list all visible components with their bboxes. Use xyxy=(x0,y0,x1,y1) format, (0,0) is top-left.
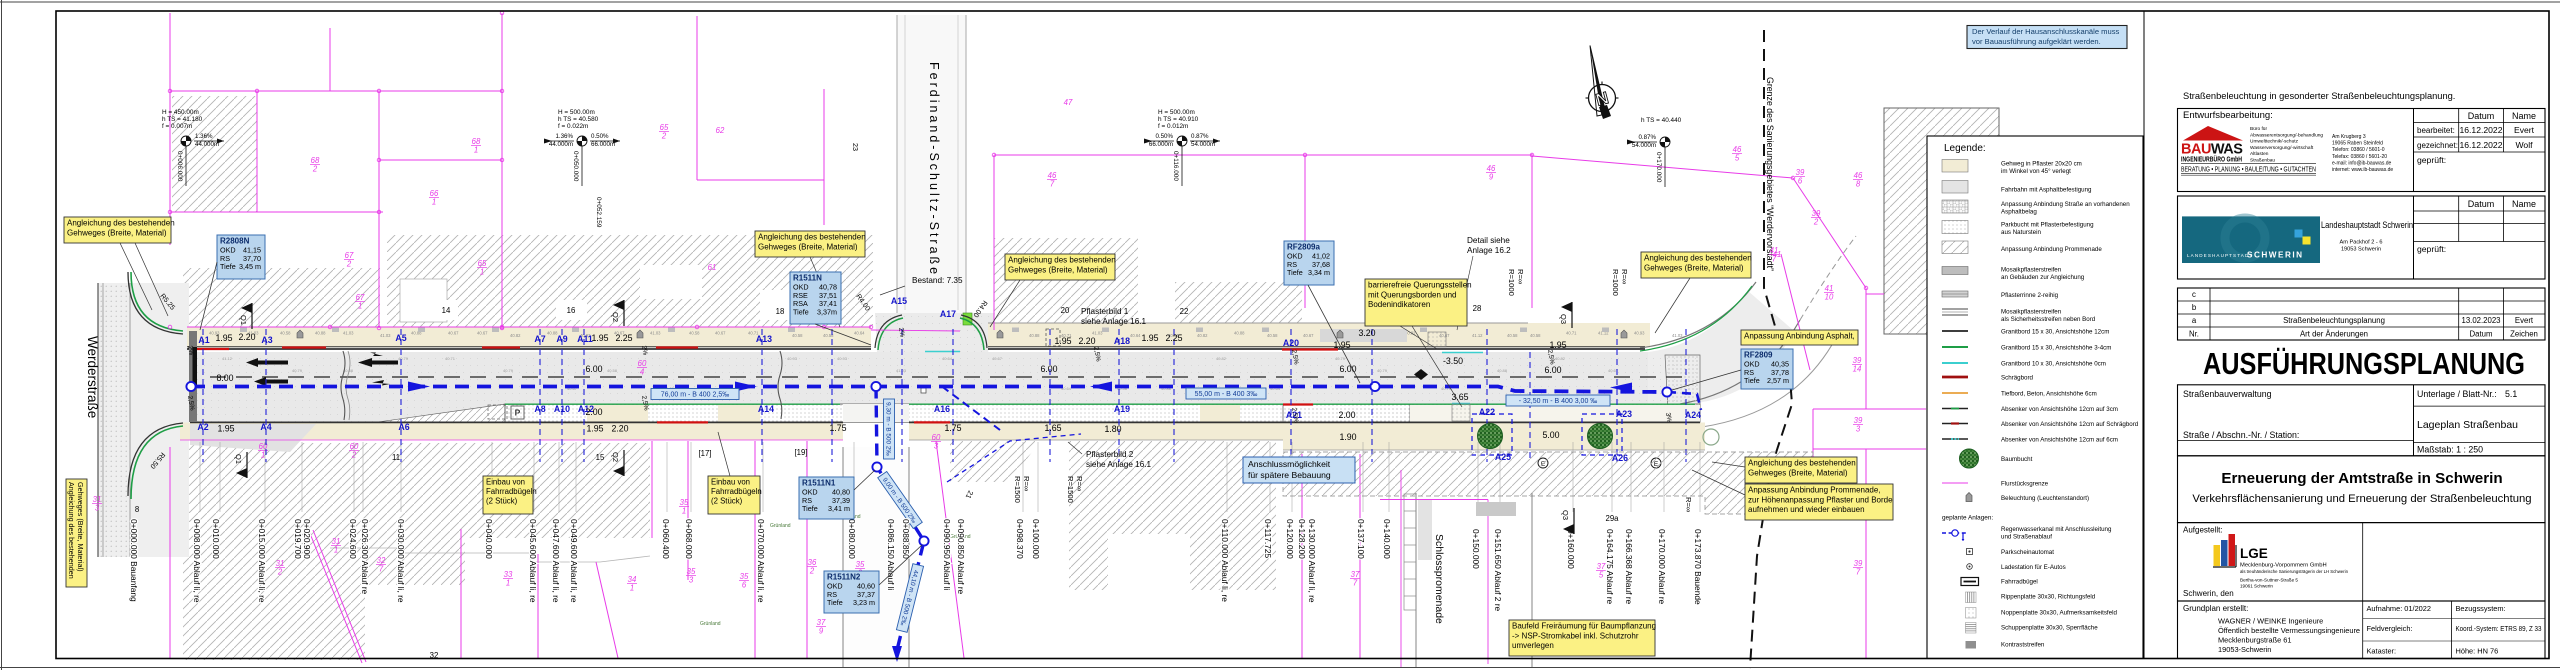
svg-text:6.00: 6.00 xyxy=(1544,365,1561,375)
svg-text:0+090.950 Ablauf li: 0+090.950 Ablauf li xyxy=(942,519,952,591)
svg-text:Öffentlich bestellte Vermessun: Öffentlich bestellte Vermessungsingenieu… xyxy=(2218,626,2360,635)
svg-text:Q2: Q2 xyxy=(611,312,620,322)
svg-text:41.03: 41.03 xyxy=(650,331,661,336)
svg-text:3,45 m: 3,45 m xyxy=(239,262,261,271)
svg-text:19053-Schwerin: 19053-Schwerin xyxy=(2218,645,2271,654)
svg-text:aufnehmen und wieder einbauen: aufnehmen und wieder einbauen xyxy=(1748,505,1865,514)
svg-text:2.20: 2.20 xyxy=(238,332,255,342)
svg-text:Pflasterbild 1: Pflasterbild 1 xyxy=(1081,307,1129,316)
svg-text:0+151.650 Ablauf 2 re: 0+151.650 Ablauf 2 re xyxy=(1493,529,1503,612)
svg-text:Angleichung des bestehenden: Angleichung des bestehenden xyxy=(758,233,866,242)
svg-text:1.36%: 1.36% xyxy=(195,133,213,140)
svg-text:16: 16 xyxy=(567,306,576,315)
svg-text:66.000m: 66.000m xyxy=(591,141,615,148)
svg-text:A10: A10 xyxy=(554,404,570,414)
svg-text:0+026.300 Ablauf re: 0+026.300 Ablauf re xyxy=(360,519,370,595)
svg-text:A6: A6 xyxy=(398,422,409,432)
svg-text:Tiefe: Tiefe xyxy=(827,598,843,607)
svg-text:7: 7 xyxy=(379,565,384,574)
svg-text:Fahrradbügeln: Fahrradbügeln xyxy=(486,487,537,496)
svg-text:1: 1 xyxy=(630,584,634,593)
svg-text:Mosaikpflasterstreifen: Mosaikpflasterstreifen xyxy=(2001,267,2062,274)
svg-text:Name: Name xyxy=(2512,199,2536,209)
svg-text:A5: A5 xyxy=(395,333,406,343)
svg-text:im Winkel von 45° verlegt: im Winkel von 45° verlegt xyxy=(2001,168,2071,175)
svg-text:Noppenplatte 30x30, Aufmerksam: Noppenplatte 30x30, Aufmerksamkeitsfeld xyxy=(2001,610,2117,617)
svg-text:0+040.000: 0+040.000 xyxy=(484,519,494,559)
svg-text:A24: A24 xyxy=(1685,410,1701,420)
svg-text:Pflasterbild 2: Pflasterbild 2 xyxy=(1086,450,1134,459)
svg-text:0+045.600 Ablauf li, re: 0+045.600 Ablauf li, re xyxy=(528,519,538,603)
svg-text:Büro für: Büro für xyxy=(2250,126,2267,132)
svg-text:AUSFÜHRUNGSPLANUNG: AUSFÜHRUNGSPLANUNG xyxy=(2203,346,2525,381)
svg-text:Koord.-System: ETRS 89, Z 33: Koord.-System: ETRS 89, Z 33 xyxy=(2456,626,2542,633)
svg-text:1: 1 xyxy=(480,268,484,277)
svg-text:Einbau von: Einbau von xyxy=(711,478,750,487)
svg-text:Absenker von Ansichtshöhe 12cm: Absenker von Ansichtshöhe 12cm auf 3cm xyxy=(2001,406,2118,413)
svg-text:Mosaikpflasterstreifen: Mosaikpflasterstreifen xyxy=(2001,309,2062,316)
svg-text:40.79: 40.79 xyxy=(1377,368,1388,373)
svg-text:15: 15 xyxy=(596,453,605,462)
svg-text:40.79: 40.79 xyxy=(292,368,303,373)
svg-text:3,23 m: 3,23 m xyxy=(853,598,875,607)
svg-text:[19]: [19] xyxy=(794,448,807,457)
svg-text:Pflasterrinne 2-reihig: Pflasterrinne 2-reihig xyxy=(2001,292,2059,299)
svg-text:2: 2 xyxy=(312,165,318,174)
svg-text:A17: A17 xyxy=(940,309,956,319)
svg-text:(2 Stück): (2 Stück) xyxy=(711,496,743,505)
svg-text:A23: A23 xyxy=(1616,409,1632,419)
svg-text:0+098.370: 0+098.370 xyxy=(1015,519,1025,559)
svg-text:[17]: [17] xyxy=(698,449,711,458)
svg-text:40.82: 40.82 xyxy=(1216,356,1227,361)
svg-text:0+128.200: 0+128.200 xyxy=(1297,519,1307,559)
svg-text:0+130.000 Ablauf li, re: 0+130.000 Ablauf li, re xyxy=(1307,519,1317,603)
svg-text:siehe Anlage 16.1: siehe Anlage 16.1 xyxy=(1081,317,1147,326)
svg-text:R1511N1: R1511N1 xyxy=(802,479,836,488)
svg-text:A16: A16 xyxy=(934,404,950,414)
svg-text:geplante Anlagen:: geplante Anlagen: xyxy=(1942,515,1993,522)
svg-text:Einbau von: Einbau von xyxy=(486,478,525,487)
svg-text:41: 41 xyxy=(1773,250,1782,259)
svg-text:1.95: 1.95 xyxy=(1054,336,1071,346)
svg-text:40.79: 40.79 xyxy=(503,368,514,373)
svg-text:Gehweges (Breite, Material): Gehweges (Breite, Material) xyxy=(76,482,85,571)
svg-text:0.50%: 0.50% xyxy=(1155,133,1173,140)
svg-text:40.82: 40.82 xyxy=(1555,356,1566,361)
svg-text:0+068.000: 0+068.000 xyxy=(684,519,694,559)
svg-text:Lageplan Straßenbau: Lageplan Straßenbau xyxy=(2417,419,2518,431)
svg-text:Q2: Q2 xyxy=(611,452,620,462)
svg-text:Tiefe: Tiefe xyxy=(793,307,809,316)
svg-text:-> NSP-Stromkabel inkl. Schutz: -> NSP-Stromkabel inkl. Schutzrohr xyxy=(1512,631,1639,640)
svg-text:umverlegen: umverlegen xyxy=(1512,641,1554,650)
svg-text:3,34 m: 3,34 m xyxy=(1308,268,1330,277)
svg-text:40.88: 40.88 xyxy=(1234,331,1245,336)
svg-text:R1511N: R1511N xyxy=(793,274,822,283)
svg-text:0+070.000 Ablauf li, re: 0+070.000 Ablauf li, re xyxy=(756,519,766,603)
svg-text:Fahrradbügel: Fahrradbügel xyxy=(2001,579,2038,586)
svg-text:Asphaltbelag: Asphaltbelag xyxy=(2001,208,2037,215)
svg-text:16.12.2022: 16.12.2022 xyxy=(2459,125,2502,135)
svg-text:20: 20 xyxy=(1061,306,1070,315)
svg-text:0+030.000 Ablauf li, re: 0+030.000 Ablauf li, re xyxy=(396,519,406,603)
svg-text:1.90: 1.90 xyxy=(1339,432,1356,442)
svg-text:gezeichnet:: gezeichnet: xyxy=(2417,141,2458,150)
svg-text:Granitbord 15 x 30, Ansichtshö: Granitbord 15 x 30, Ansichtshöhe 3-4cm xyxy=(2001,345,2111,352)
svg-text:Grünland: Grünland xyxy=(770,523,791,529)
svg-text:Evert: Evert xyxy=(2514,125,2535,135)
svg-text:für spätere Bebauung: für spätere Bebauung xyxy=(1248,470,1331,480)
svg-text:LGE: LGE xyxy=(2240,546,2268,561)
svg-text:Werderstraße: Werderstraße xyxy=(85,336,100,418)
svg-text:0+020.900: 0+020.900 xyxy=(302,519,312,559)
svg-text:Tiefe: Tiefe xyxy=(1744,376,1760,385)
svg-text:23: 23 xyxy=(851,143,860,151)
svg-text:40.67: 40.67 xyxy=(448,331,459,336)
svg-text:Granitbord 15 x 30, Ansichtshö: Granitbord 15 x 30, Ansichtshöhe 12cm xyxy=(2001,329,2109,336)
svg-text:41.12: 41.12 xyxy=(1472,333,1483,338)
svg-text:40.67: 40.67 xyxy=(715,331,726,336)
svg-text:0+080.000: 0+080.000 xyxy=(847,519,857,559)
svg-text:A26: A26 xyxy=(1612,453,1628,463)
svg-text:an Gebäuden zur Angleichung: an Gebäuden zur Angleichung xyxy=(2001,274,2085,281)
svg-text:Beleuchtung (Leuchtenstandort): Beleuchtung (Leuchtenstandort) xyxy=(2001,495,2089,502)
svg-text:40.64: 40.64 xyxy=(1130,333,1141,338)
svg-text:Schrägbord: Schrägbord xyxy=(2001,375,2034,382)
svg-text:40.71: 40.71 xyxy=(1566,331,1577,336)
svg-text:A9: A9 xyxy=(556,334,567,344)
svg-text:4: 4 xyxy=(640,368,645,377)
svg-text:40.67: 40.67 xyxy=(477,331,488,336)
svg-text:40.93: 40.93 xyxy=(1634,331,1645,336)
svg-text:A25: A25 xyxy=(1495,452,1511,462)
svg-text:41.03: 41.03 xyxy=(896,368,907,373)
svg-text:2,57 m: 2,57 m xyxy=(1767,376,1789,385)
svg-text:2: 2 xyxy=(346,260,352,269)
svg-text:55,00 m - B 400 3‰: 55,00 m - B 400 3‰ xyxy=(1195,391,1258,398)
svg-text:8.00: 8.00 xyxy=(216,373,233,383)
svg-text:0+120.000: 0+120.000 xyxy=(1285,519,1295,559)
svg-text:22: 22 xyxy=(1180,307,1189,316)
svg-text:Q3: Q3 xyxy=(1561,510,1570,520)
svg-text:Straßenbeleuchtung in gesonder: Straßenbeleuchtung in gesonderter Straße… xyxy=(2183,91,2455,101)
svg-text:INGENIEURBÜRO GmbH: INGENIEURBÜRO GmbH xyxy=(2181,155,2242,164)
svg-text:Tiefe: Tiefe xyxy=(1287,268,1303,277)
svg-text:40.58: 40.58 xyxy=(1507,333,1518,338)
svg-text:1.95: 1.95 xyxy=(1141,333,1158,343)
svg-text:0.50%: 0.50% xyxy=(591,133,609,140)
svg-text:40.82: 40.82 xyxy=(1197,333,1208,338)
svg-text:Feldvergleich:: Feldvergleich: xyxy=(2367,624,2413,633)
svg-text:40.79: 40.79 xyxy=(398,356,409,361)
svg-text:Mecklenburg-Vorpommern GmbH: Mecklenburg-Vorpommern GmbH xyxy=(2240,563,2327,569)
svg-text:und Straßenablauf: und Straßenablauf xyxy=(2001,533,2052,540)
svg-text:siehe Anlage 16.1: siehe Anlage 16.1 xyxy=(1086,460,1152,469)
svg-text:18: 18 xyxy=(776,307,785,316)
svg-text:h TS = 40.910: h TS = 40.910 xyxy=(1158,116,1199,123)
svg-text:Telefon: 03860 / 5601-0: Telefon: 03860 / 5601-0 xyxy=(2332,147,2385,153)
svg-text:A15: A15 xyxy=(891,296,907,306)
svg-text:5: 5 xyxy=(1735,154,1740,163)
svg-text:6: 6 xyxy=(1798,177,1803,186)
svg-text:0+015.000 Ablauf li, re: 0+015.000 Ablauf li, re xyxy=(257,519,267,603)
svg-text:2: 2 xyxy=(809,567,815,576)
svg-text:R2808N: R2808N xyxy=(220,237,250,246)
svg-text:Detail siehe: Detail siehe xyxy=(1467,236,1510,245)
svg-text:R=∞: R=∞ xyxy=(1620,269,1629,284)
svg-text:Datum: Datum xyxy=(2468,111,2495,121)
svg-text:0+086.150 Ablauf li: 0+086.150 Ablauf li xyxy=(886,519,896,591)
svg-text:Gehweges (Breite, Material): Gehweges (Breite, Material) xyxy=(67,228,167,237)
svg-text:Schuppenplatte 30x30, Sperrflä: Schuppenplatte 30x30, Sperrfläche xyxy=(2001,625,2098,632)
svg-text:Bertha-von-Suttner-Straße 5: Bertha-von-Suttner-Straße 5 xyxy=(2240,578,2298,583)
svg-text:h TS = 41.180: h TS = 41.180 xyxy=(162,116,203,123)
svg-text:A19: A19 xyxy=(1114,404,1130,414)
svg-text:Kontraststreifen: Kontraststreifen xyxy=(2001,642,2045,649)
svg-text:c: c xyxy=(2192,290,2196,299)
svg-text:5.1: 5.1 xyxy=(2505,389,2517,399)
svg-text:5: 5 xyxy=(1599,571,1604,580)
svg-text:14: 14 xyxy=(1853,365,1862,374)
svg-text:A18: A18 xyxy=(1114,336,1130,346)
svg-text:0+150.000: 0+150.000 xyxy=(1471,529,1481,569)
svg-text:5.00: 5.00 xyxy=(1542,430,1559,440)
svg-text:2.25: 2.25 xyxy=(1165,333,1182,343)
svg-text:10: 10 xyxy=(1825,293,1834,302)
svg-text:h TS = 40.440: h TS = 40.440 xyxy=(1641,117,1682,124)
svg-text:40.71: 40.71 xyxy=(445,356,456,361)
svg-text:f = 0.022m: f = 0.022m xyxy=(558,123,588,130)
svg-text:3: 3 xyxy=(689,576,694,585)
svg-text:41.12: 41.12 xyxy=(222,356,233,361)
svg-text:1: 1 xyxy=(474,146,478,155)
svg-text:Gehweges (Breite, Material): Gehweges (Breite, Material) xyxy=(1008,265,1108,274)
svg-text:0+060.400: 0+060.400 xyxy=(661,519,671,559)
svg-text:Legende:: Legende: xyxy=(1944,143,1986,154)
svg-text:1: 1 xyxy=(334,546,338,555)
svg-text:Bodenindikatoren: Bodenindikatoren xyxy=(1368,300,1430,309)
svg-text:9: 9 xyxy=(1489,173,1494,182)
svg-text:A20: A20 xyxy=(1283,338,1299,348)
svg-text:40.58: 40.58 xyxy=(792,333,803,338)
svg-text:0+173.870 Bauende: 0+173.870 Bauende xyxy=(1693,529,1703,605)
svg-text:A8: A8 xyxy=(534,404,545,414)
svg-text:Anlage 16.2: Anlage 16.2 xyxy=(1467,246,1511,255)
svg-text:Q3: Q3 xyxy=(1559,314,1568,324)
svg-text:1: 1 xyxy=(358,302,362,311)
svg-text:66.000m: 66.000m xyxy=(1149,141,1173,148)
svg-text:aus Naturstein: aus Naturstein xyxy=(2001,229,2041,236)
svg-text:f = 0.007m: f = 0.007m xyxy=(162,123,192,130)
svg-text:barrierefreie Querungsstellen: barrierefreie Querungsstellen xyxy=(1368,281,1472,290)
svg-text:Anpassung Anbindung Prommenade: Anpassung Anbindung Prommenade, xyxy=(1748,486,1881,495)
svg-text:0+140.000: 0+140.000 xyxy=(1382,519,1392,559)
svg-text:Q1: Q1 xyxy=(234,454,243,464)
svg-text:f = 0.012m: f = 0.012m xyxy=(1158,123,1188,130)
svg-text:0+100.000: 0+100.000 xyxy=(1031,519,1041,559)
svg-text:29a: 29a xyxy=(1605,514,1619,523)
svg-text:Angleichung des bestehenden: Angleichung des bestehenden xyxy=(1748,459,1856,468)
svg-text:40.58: 40.58 xyxy=(689,331,700,336)
svg-text:Straßenbau: Straßenbau xyxy=(2250,158,2275,164)
svg-text:Straßenbeleuchtungsplanung: Straßenbeleuchtungsplanung xyxy=(2283,316,2385,325)
svg-text:Flurstücksgrenze: Flurstücksgrenze xyxy=(2001,481,2049,488)
svg-text:Umwelttechnik/-schutz: Umwelttechnik/-schutz xyxy=(2250,139,2299,145)
svg-text:14: 14 xyxy=(442,306,451,315)
svg-text:40.79: 40.79 xyxy=(1335,356,1346,361)
svg-text:Anpassung Anbindung Asphalt,: Anpassung Anbindung Asphalt, xyxy=(1744,332,1855,341)
svg-text:Art der Änderungen: Art der Änderungen xyxy=(2300,330,2368,339)
svg-text:RF2809: RF2809 xyxy=(1744,351,1773,360)
svg-text:3: 3 xyxy=(1856,425,1861,434)
svg-text:40.67: 40.67 xyxy=(992,356,1003,361)
svg-text:R=1500: R=1500 xyxy=(1066,476,1075,503)
svg-text:0+050.000: 0+050.000 xyxy=(572,151,579,182)
svg-text:1.65: 1.65 xyxy=(1044,423,1061,433)
svg-text:0+117.725: 0+117.725 xyxy=(1263,519,1273,559)
svg-text:Anschlussmöglichkeit: Anschlussmöglichkeit xyxy=(1248,459,1331,469)
svg-text:0.87%: 0.87% xyxy=(1638,134,1656,141)
svg-text:Regenwasserkanal mit Anschluss: Regenwasserkanal mit Anschlussleitung xyxy=(2001,526,2112,533)
svg-text:Angleichung des bestehenden: Angleichung des bestehenden xyxy=(67,482,76,579)
svg-text:0+088.850: 0+088.850 xyxy=(901,519,911,559)
svg-text:1.95: 1.95 xyxy=(217,424,234,434)
svg-text:R=∞: R=∞ xyxy=(1075,476,1084,491)
svg-text:0+166.368 Ablauf re: 0+166.368 Ablauf re xyxy=(1624,529,1634,605)
svg-text:Maßstab: 1 : 250: Maßstab: 1 : 250 xyxy=(2417,445,2483,455)
svg-text:0+024.600: 0+024.600 xyxy=(348,519,358,559)
svg-text:9,30 m - B 500 2‰: 9,30 m - B 500 2‰ xyxy=(884,402,891,456)
svg-text:Parkbucht mit Pflasterbefestig: Parkbucht mit Pflasterbefestigung xyxy=(2001,222,2094,229)
svg-text:0+049.600 Ablauf li, re: 0+049.600 Ablauf li, re xyxy=(569,519,579,603)
svg-text:e-mail: info@ib-bauwas.de: e-mail: info@ib-bauwas.de xyxy=(2332,160,2391,166)
svg-text:0+090.850 Ablauf re: 0+090.850 Ablauf re xyxy=(956,519,966,595)
svg-text:LANDESHAUPTSTADT: LANDESHAUPTSTADT xyxy=(2187,253,2253,258)
svg-text:41.03: 41.03 xyxy=(343,331,354,336)
svg-text:0+010.000: 0+010.000 xyxy=(211,519,221,559)
svg-text:2.25: 2.25 xyxy=(615,333,632,343)
svg-text:Parkscheinautomat: Parkscheinautomat xyxy=(2001,549,2054,556)
svg-text:internet: www.ib-bauwas.de: internet: www.ib-bauwas.de xyxy=(2332,167,2393,173)
svg-text:- 32,50 m - B 400 3,00 ‰: - 32,50 m - B 400 3,00 ‰ xyxy=(1519,398,1598,405)
svg-text:A3: A3 xyxy=(261,335,272,345)
svg-text:Granitbord 10 x 30, Ansichtshö: Granitbord 10 x 30, Ansichtshöhe 0cm xyxy=(2001,361,2106,368)
svg-text:A1: A1 xyxy=(198,335,209,345)
svg-text:als treuhänderische Sanierungs: als treuhänderische Sanierungsträgerin d… xyxy=(2240,569,2349,574)
svg-text:Anpassung Anbindung Prommenade: Anpassung Anbindung Prommenade xyxy=(2001,246,2102,253)
svg-text:1.95: 1.95 xyxy=(586,424,603,434)
svg-text:0+137.100: 0+137.100 xyxy=(1356,519,1366,559)
svg-text:Angleichung des bestehenden: Angleichung des bestehenden xyxy=(67,219,175,228)
svg-text:Baufeld Freiräumung für Baumpf: Baufeld Freiräumung für Baumpflanzung xyxy=(1512,622,1656,631)
svg-text:0+052.159: 0+052.159 xyxy=(595,197,602,228)
svg-text:7: 7 xyxy=(1856,568,1861,577)
svg-text:0+170.000: 0+170.000 xyxy=(1655,152,1662,183)
svg-text:Erneuerung der Amtstraße in Sc: Erneuerung der Amtstraße in Schwerin xyxy=(2221,470,2502,487)
svg-text:8: 8 xyxy=(1856,180,1861,189)
svg-text:zur Höhenanpassung Pflaster un: zur Höhenanpassung Pflaster und Borde xyxy=(1748,495,1893,504)
svg-text:A13: A13 xyxy=(756,334,772,344)
svg-text:44.000m: 44.000m xyxy=(195,141,219,148)
svg-text:1: 1 xyxy=(261,451,265,460)
svg-text:Datum: Datum xyxy=(2470,330,2493,339)
svg-text:-3.50: -3.50 xyxy=(1443,356,1463,366)
svg-text:H = 450.00m: H = 450.00m xyxy=(162,109,199,116)
svg-text:A14: A14 xyxy=(758,404,774,414)
svg-text:Mecklenburgstraße 61: Mecklenburgstraße 61 xyxy=(2218,636,2292,645)
svg-text:Schwerin, den: Schwerin, den xyxy=(2183,589,2234,598)
svg-text:9: 9 xyxy=(819,627,824,636)
svg-text:H = 500.00m: H = 500.00m xyxy=(558,109,595,116)
svg-text:b: b xyxy=(2192,303,2197,312)
svg-text:0+019.700: 0+019.700 xyxy=(293,519,303,559)
svg-text:vor Bauausführung aufgeklärt w: vor Bauausführung aufgeklärt werden. xyxy=(1972,37,2101,46)
svg-text:Fahrradbügeln: Fahrradbügeln xyxy=(711,487,762,496)
svg-text:3,41 m: 3,41 m xyxy=(828,504,850,513)
svg-text:7: 7 xyxy=(1353,579,1358,588)
svg-text:Verkehrsflächensanierung und E: Verkehrsflächensanierung und Erneuerung … xyxy=(2192,493,2531,505)
svg-text:0+110.000 Ablauf li, re: 0+110.000 Ablauf li, re xyxy=(1220,519,1230,602)
svg-text:Grünland: Grünland xyxy=(700,621,721,627)
svg-text:Angleichung des bestehenden: Angleichung des bestehenden xyxy=(1008,256,1116,265)
svg-text:0+008.000 Ablauf li, re: 0+008.000 Ablauf li, re xyxy=(192,519,202,603)
svg-text:H = 500.00m: H = 500.00m xyxy=(1158,109,1195,116)
svg-text:Fahrbahn mit Asphaltbefestigun: Fahrbahn mit Asphaltbefestigung xyxy=(2001,187,2092,194)
svg-text:Am Packhof 2 - 6: Am Packhof 2 - 6 xyxy=(2340,240,2383,246)
svg-text:R=1000: R=1000 xyxy=(1507,269,1516,296)
svg-text:40.67: 40.67 xyxy=(1303,333,1314,338)
svg-text:28: 28 xyxy=(1473,304,1482,313)
svg-text:40.64: 40.64 xyxy=(854,331,865,336)
svg-text:1: 1 xyxy=(682,507,686,516)
svg-text:Wasserversorgung/-wirtschaft: Wasserversorgung/-wirtschaft xyxy=(2250,145,2314,151)
svg-text:Gehweges (Breite, Material): Gehweges (Breite, Material) xyxy=(1748,468,1848,477)
svg-text:A22: A22 xyxy=(1479,407,1495,417)
svg-text:SCHWERIN: SCHWERIN xyxy=(2247,251,2304,260)
svg-text:47: 47 xyxy=(1064,98,1073,107)
svg-text:Tiefe: Tiefe xyxy=(802,504,818,513)
svg-text:Telefax: 03860 / 5601-20: Telefax: 03860 / 5601-20 xyxy=(2332,154,2387,160)
svg-text:54.000m: 54.000m xyxy=(1191,141,1215,148)
svg-text:76,00 m - B 400 2,5‰: 76,00 m - B 400 2,5‰ xyxy=(661,392,729,399)
svg-text:3,37m: 3,37m xyxy=(817,307,837,316)
svg-text:2: 2 xyxy=(1813,218,1819,227)
svg-text:a: a xyxy=(2192,316,2197,325)
svg-text:Altlasten: Altlasten xyxy=(2250,151,2269,157)
svg-text:Straßenbauverwaltung: Straßenbauverwaltung xyxy=(2183,389,2272,399)
svg-text:Gehweg in Pflaster 20x20 cm: Gehweg in Pflaster 20x20 cm xyxy=(2001,161,2082,168)
svg-text:40.64: 40.64 xyxy=(942,356,953,361)
svg-text:2.00: 2.00 xyxy=(1338,410,1355,420)
svg-text:40.58: 40.58 xyxy=(1530,333,1541,338)
svg-text:Landeshauptstadt Schwerin: Landeshauptstadt Schwerin xyxy=(2321,220,2413,230)
svg-text:1.95: 1.95 xyxy=(215,333,232,343)
svg-text:8: 8 xyxy=(135,505,139,514)
svg-text:40.58: 40.58 xyxy=(280,331,291,336)
svg-text:R=∞: R=∞ xyxy=(1684,497,1693,512)
svg-text:0+006.000: 0+006.000 xyxy=(176,151,183,182)
svg-text:40.58: 40.58 xyxy=(1267,333,1278,338)
svg-text:7: 7 xyxy=(1050,180,1055,189)
svg-text:0.87%: 0.87% xyxy=(1191,133,1209,140)
svg-text:Zeichen: Zeichen xyxy=(2510,330,2538,339)
svg-text:Unterlage / Blatt-Nr.:: Unterlage / Blatt-Nr.: xyxy=(2417,389,2497,399)
svg-text:6.00: 6.00 xyxy=(585,364,602,374)
svg-text:Aufgestellt:: Aufgestellt: xyxy=(2183,526,2223,535)
svg-text:Absenker von Ansichtshöhe 12cm: Absenker von Ansichtshöhe 12cm auf Schrä… xyxy=(2001,421,2139,428)
svg-text:Wolf: Wolf xyxy=(2515,140,2533,150)
